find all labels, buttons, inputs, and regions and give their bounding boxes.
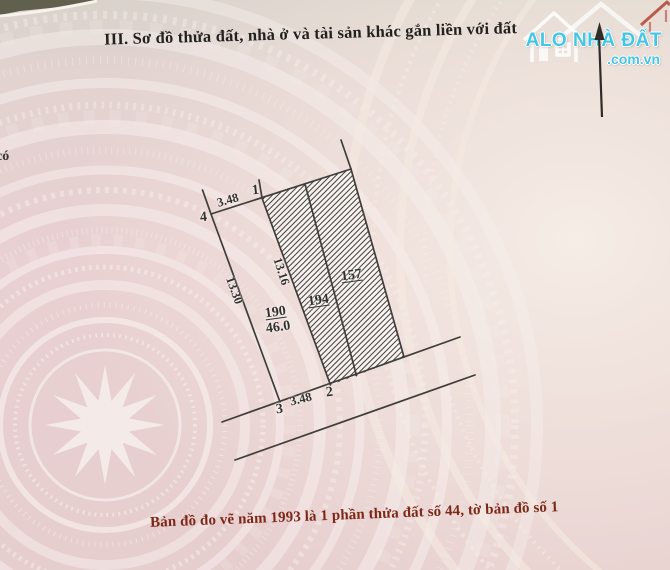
north-arrow-icon <box>0 0 670 570</box>
